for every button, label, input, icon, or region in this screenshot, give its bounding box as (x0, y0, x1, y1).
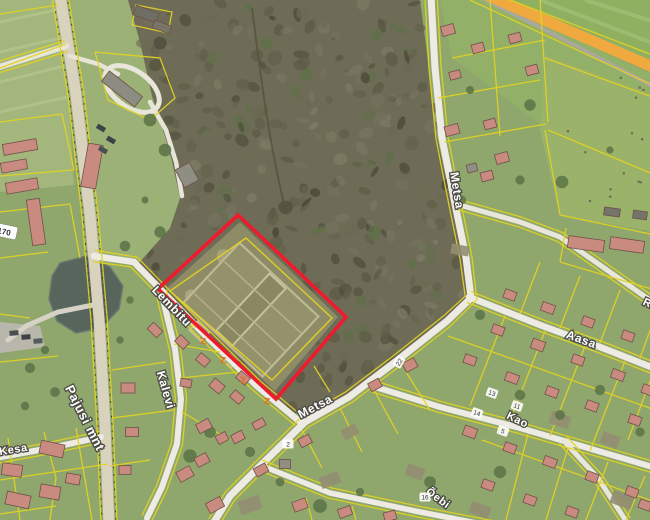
field-speckle (584, 151, 586, 153)
aerial-map[interactable]: Pajusi mnt Lembitu Kalevi Metsa Metsa Aa… (0, 0, 650, 520)
car (9, 330, 18, 336)
tree (466, 86, 474, 94)
building (65, 473, 81, 485)
field-speckle (639, 87, 641, 89)
house-number-badge: 16 (420, 493, 431, 502)
field-speckle (623, 172, 625, 174)
tree (159, 144, 172, 157)
field-speckle (640, 181, 642, 183)
field-speckle (567, 130, 569, 132)
field-speckle (631, 132, 633, 134)
tree (126, 296, 133, 303)
tree (120, 241, 131, 252)
field-speckle (635, 97, 637, 99)
forest-texture (186, 140, 196, 153)
tree (276, 478, 285, 487)
tree (313, 499, 327, 513)
car (21, 334, 30, 340)
building (1, 463, 22, 478)
forest-texture (136, 38, 152, 48)
tree (41, 346, 49, 354)
tree (144, 114, 157, 127)
tree (356, 488, 364, 496)
house-number-text: 2 (286, 441, 290, 448)
tree (25, 363, 35, 373)
tree (50, 387, 60, 397)
field-speckle (638, 181, 640, 183)
field-speckle (589, 200, 591, 202)
tree (556, 176, 569, 189)
tree (154, 226, 165, 237)
tree (21, 402, 29, 410)
tree (494, 466, 506, 478)
building (180, 378, 192, 388)
tree (606, 146, 613, 153)
field-speckle (609, 188, 611, 190)
map-viewport[interactable]: Pajusi mnt Lembitu Kalevi Metsa Metsa Aa… (0, 0, 650, 520)
building (604, 207, 621, 217)
field-speckle (609, 196, 611, 198)
tree (555, 410, 565, 420)
tree (595, 385, 605, 395)
building (121, 383, 135, 393)
tree (515, 390, 525, 400)
tree (635, 427, 644, 436)
car (33, 338, 42, 344)
building (119, 466, 131, 475)
field-speckle (642, 89, 644, 91)
house-number-badge: 2 (283, 440, 294, 449)
house-number-text: 16 (421, 494, 429, 501)
tree (524, 99, 535, 110)
tree (515, 175, 524, 184)
building (633, 210, 648, 220)
field-speckle (641, 138, 643, 140)
tree (142, 197, 149, 204)
tree (475, 310, 485, 320)
building (280, 460, 291, 469)
field-speckle (620, 77, 622, 79)
building (126, 428, 139, 437)
tree (116, 336, 123, 343)
tree (245, 447, 255, 457)
